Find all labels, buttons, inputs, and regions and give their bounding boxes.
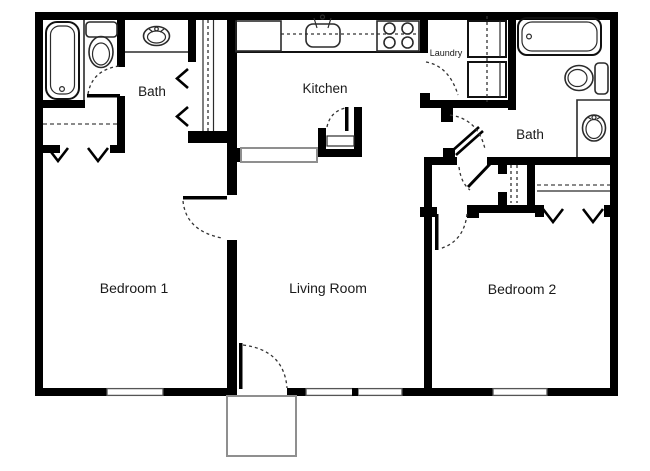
- bath1-door-leaf: [87, 94, 120, 98]
- bath2-door: [450, 115, 485, 155]
- wall-linen-left-top: [498, 163, 507, 174]
- wall-exterior-left: [35, 12, 43, 396]
- stove-icon: [377, 21, 419, 51]
- laundry-door-swing-arc: [426, 62, 458, 95]
- label-bedroom2: Bedroom 2: [488, 281, 557, 297]
- pantry-door-leaf: [345, 107, 349, 131]
- floor-plan-page: Bedroom 1 Living Room Bedroom 2 Kitchen …: [0, 0, 650, 471]
- wall-bar-stub: [227, 148, 241, 162]
- wall-pantry-right: [354, 107, 362, 157]
- bedroom1-door: [183, 196, 227, 238]
- hanger-chevron-icon: [88, 148, 108, 161]
- wall-hall-south-jamb: [467, 205, 479, 218]
- window-mullion: [352, 388, 358, 396]
- refrigerator-icon: [236, 21, 281, 51]
- hall-door-leaf: [468, 164, 490, 187]
- wall-c: [424, 157, 432, 390]
- vanity-sink-icon: [577, 100, 610, 157]
- hanger-chevron-icon: [177, 107, 188, 126]
- window-living-right: [358, 389, 402, 396]
- walls: [35, 12, 618, 396]
- entry-door: [239, 343, 287, 389]
- entry-door-leaf: [239, 343, 243, 389]
- porch: [227, 396, 296, 456]
- toilet-icon: [565, 63, 608, 94]
- wall-exterior-right: [610, 12, 618, 396]
- label-bedroom1: Bedroom 1: [100, 280, 169, 296]
- hanger-chevron-icon: [583, 209, 603, 222]
- floor-plan: Bedroom 1 Living Room Bedroom 2 Kitchen …: [0, 0, 650, 471]
- window-bedroom2: [493, 389, 547, 396]
- entry-door-swing-arc: [243, 345, 287, 388]
- bathtub-icon: [46, 22, 79, 99]
- bath1-door-swing-arc: [88, 66, 119, 94]
- wall-wardrobe-bottom: [188, 131, 233, 143]
- hanger-chevron-icon: [177, 69, 188, 88]
- breakfast-bar: [241, 148, 317, 162]
- window-bedroom1: [107, 389, 163, 396]
- wall-sink1-divider: [117, 20, 125, 67]
- pantry-door-swing-arc: [327, 108, 345, 127]
- wall-wardrobe-left: [188, 20, 196, 62]
- bedroom1-door-leaf: [183, 196, 227, 200]
- window-living-left: [306, 389, 353, 396]
- label-living-room: Living Room: [289, 280, 367, 296]
- bath1-door: [87, 66, 120, 98]
- bedroom2-closet: [537, 185, 610, 222]
- wall-laundry-right: [508, 12, 516, 110]
- bedroom2-door-swing-arc: [439, 214, 467, 249]
- toilet-icon: [86, 22, 117, 68]
- room-labels: Bedroom 1 Living Room Bedroom 2 Kitchen …: [100, 48, 557, 297]
- pantry-shelf: [327, 136, 354, 146]
- wall-kitchen-east: [420, 12, 428, 53]
- wall-linen-right: [527, 157, 535, 213]
- wall-a-lower: [227, 240, 237, 390]
- wall-laundry-south: [420, 100, 516, 108]
- label-laundry: Laundry: [430, 48, 463, 58]
- bedroom1-door-swing-arc: [183, 201, 222, 238]
- wall-closet2-jamb-left: [535, 205, 544, 217]
- bedroom2-door: [435, 214, 467, 250]
- wall-c-jamb: [420, 207, 437, 217]
- linen-closet: [511, 165, 517, 203]
- hanger-chevron-icon: [543, 209, 563, 222]
- bedroom2-door-leaf: [435, 214, 439, 250]
- label-bath2: Bath: [516, 127, 544, 142]
- wall-closet1-face-right: [110, 145, 125, 153]
- laundry: [426, 16, 506, 102]
- pantry: [327, 107, 354, 146]
- hall-door: [459, 164, 490, 190]
- wall-bath1-south: [35, 100, 85, 108]
- bedroom1-closet: [43, 124, 117, 161]
- wall-linen-left-bottom: [498, 192, 507, 205]
- entry-jamb: [233, 388, 237, 396]
- label-bath1: Bath: [138, 84, 166, 99]
- label-kitchen: Kitchen: [302, 81, 347, 96]
- wall-closet2-jamb-right: [604, 205, 613, 217]
- bathtub-icon: [518, 18, 601, 55]
- bath2-door-leaf: [452, 127, 483, 155]
- vanity-sink-icon: [125, 27, 188, 53]
